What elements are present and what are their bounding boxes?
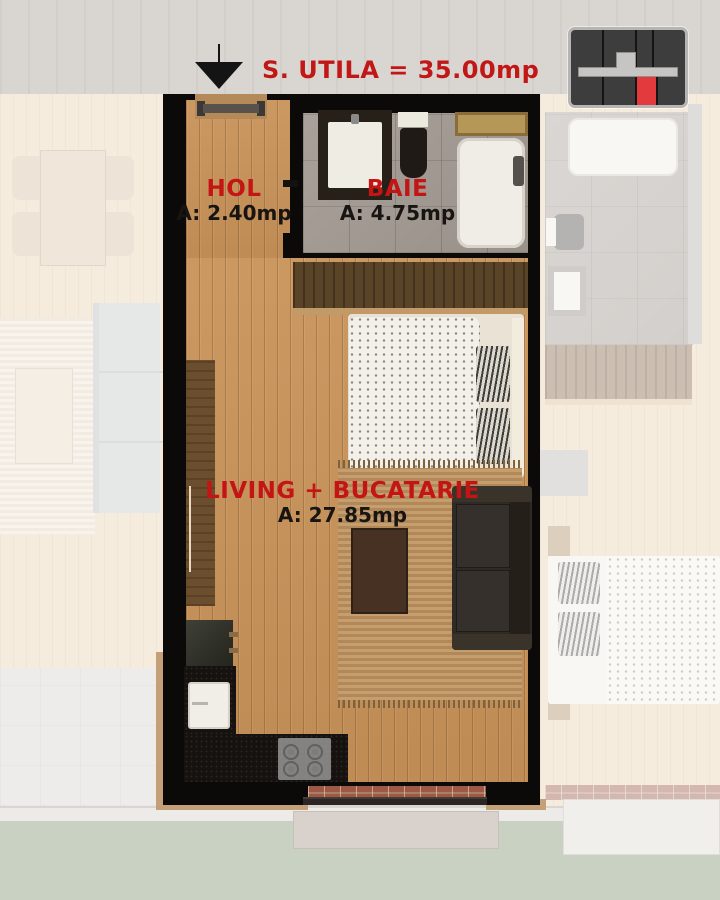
sofa-armrest: [452, 486, 532, 502]
pillow: [476, 346, 510, 402]
rug-fringe: [338, 700, 522, 708]
balcony: [293, 811, 499, 849]
fade-overlay: [540, 94, 720, 806]
bed: [348, 314, 524, 478]
balcony-door-frame: [303, 797, 487, 805]
door-hinge: [283, 180, 298, 187]
bathtub: [457, 138, 525, 248]
wall-stub: [283, 233, 303, 260]
minimap-divider: [656, 77, 658, 105]
apartment-unit: [163, 94, 540, 805]
rug-fringe: [338, 460, 522, 468]
stove: [278, 738, 331, 780]
page-title: S. UTILA = 35.00mp: [262, 56, 539, 84]
floor-plan: HOL A: 2.40mp BAIE A: 4.75mp LIVING + BU…: [0, 0, 720, 900]
hol-floor: [186, 100, 290, 258]
fade-overlay: [0, 94, 163, 806]
minimap-highlight: [637, 77, 656, 105]
bathtub-faucet: [513, 156, 524, 186]
pillow: [476, 408, 510, 464]
toilet: [398, 112, 428, 127]
bed-frame: [512, 318, 524, 474]
adjacent-unit-right: [540, 94, 720, 806]
adjacent-unit-left: [0, 94, 163, 806]
bath-shelf: [455, 112, 528, 136]
entry-door: [195, 94, 267, 119]
minimap-divider: [652, 30, 654, 67]
entrance-arrow-icon: [194, 44, 244, 90]
kitchen-sink: [188, 682, 230, 729]
minimap-corridor: [578, 67, 678, 77]
sofa-backrest: [510, 490, 530, 646]
sofa: [452, 486, 532, 650]
minimap-divider: [602, 30, 604, 67]
bathroom-sink: [318, 110, 392, 200]
toilet-bowl: [400, 128, 427, 178]
tv-cabinet: [186, 360, 215, 606]
sofa-cushion: [456, 504, 510, 568]
minimap: [568, 27, 688, 108]
sofa-cushion: [456, 570, 510, 632]
sofa-armrest: [452, 634, 532, 650]
wardrobe: [293, 262, 528, 308]
duvet: [348, 316, 480, 476]
minimap-divider: [602, 77, 604, 105]
minimap-stairwell: [616, 52, 636, 68]
kitchen-cabinet: [186, 620, 233, 668]
coffee-table: [351, 528, 408, 614]
neighbor-balcony: [563, 799, 720, 855]
